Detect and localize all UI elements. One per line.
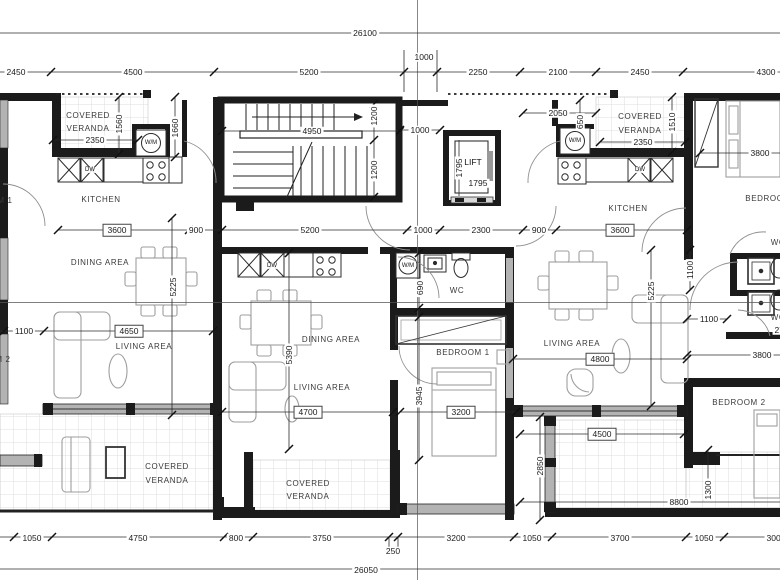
floor-plan-drawing bbox=[0, 0, 780, 580]
lift bbox=[446, 133, 498, 203]
floor-plan-page: 2610024504500520010002250210024504300235… bbox=[0, 0, 780, 580]
staircase bbox=[221, 100, 399, 199]
